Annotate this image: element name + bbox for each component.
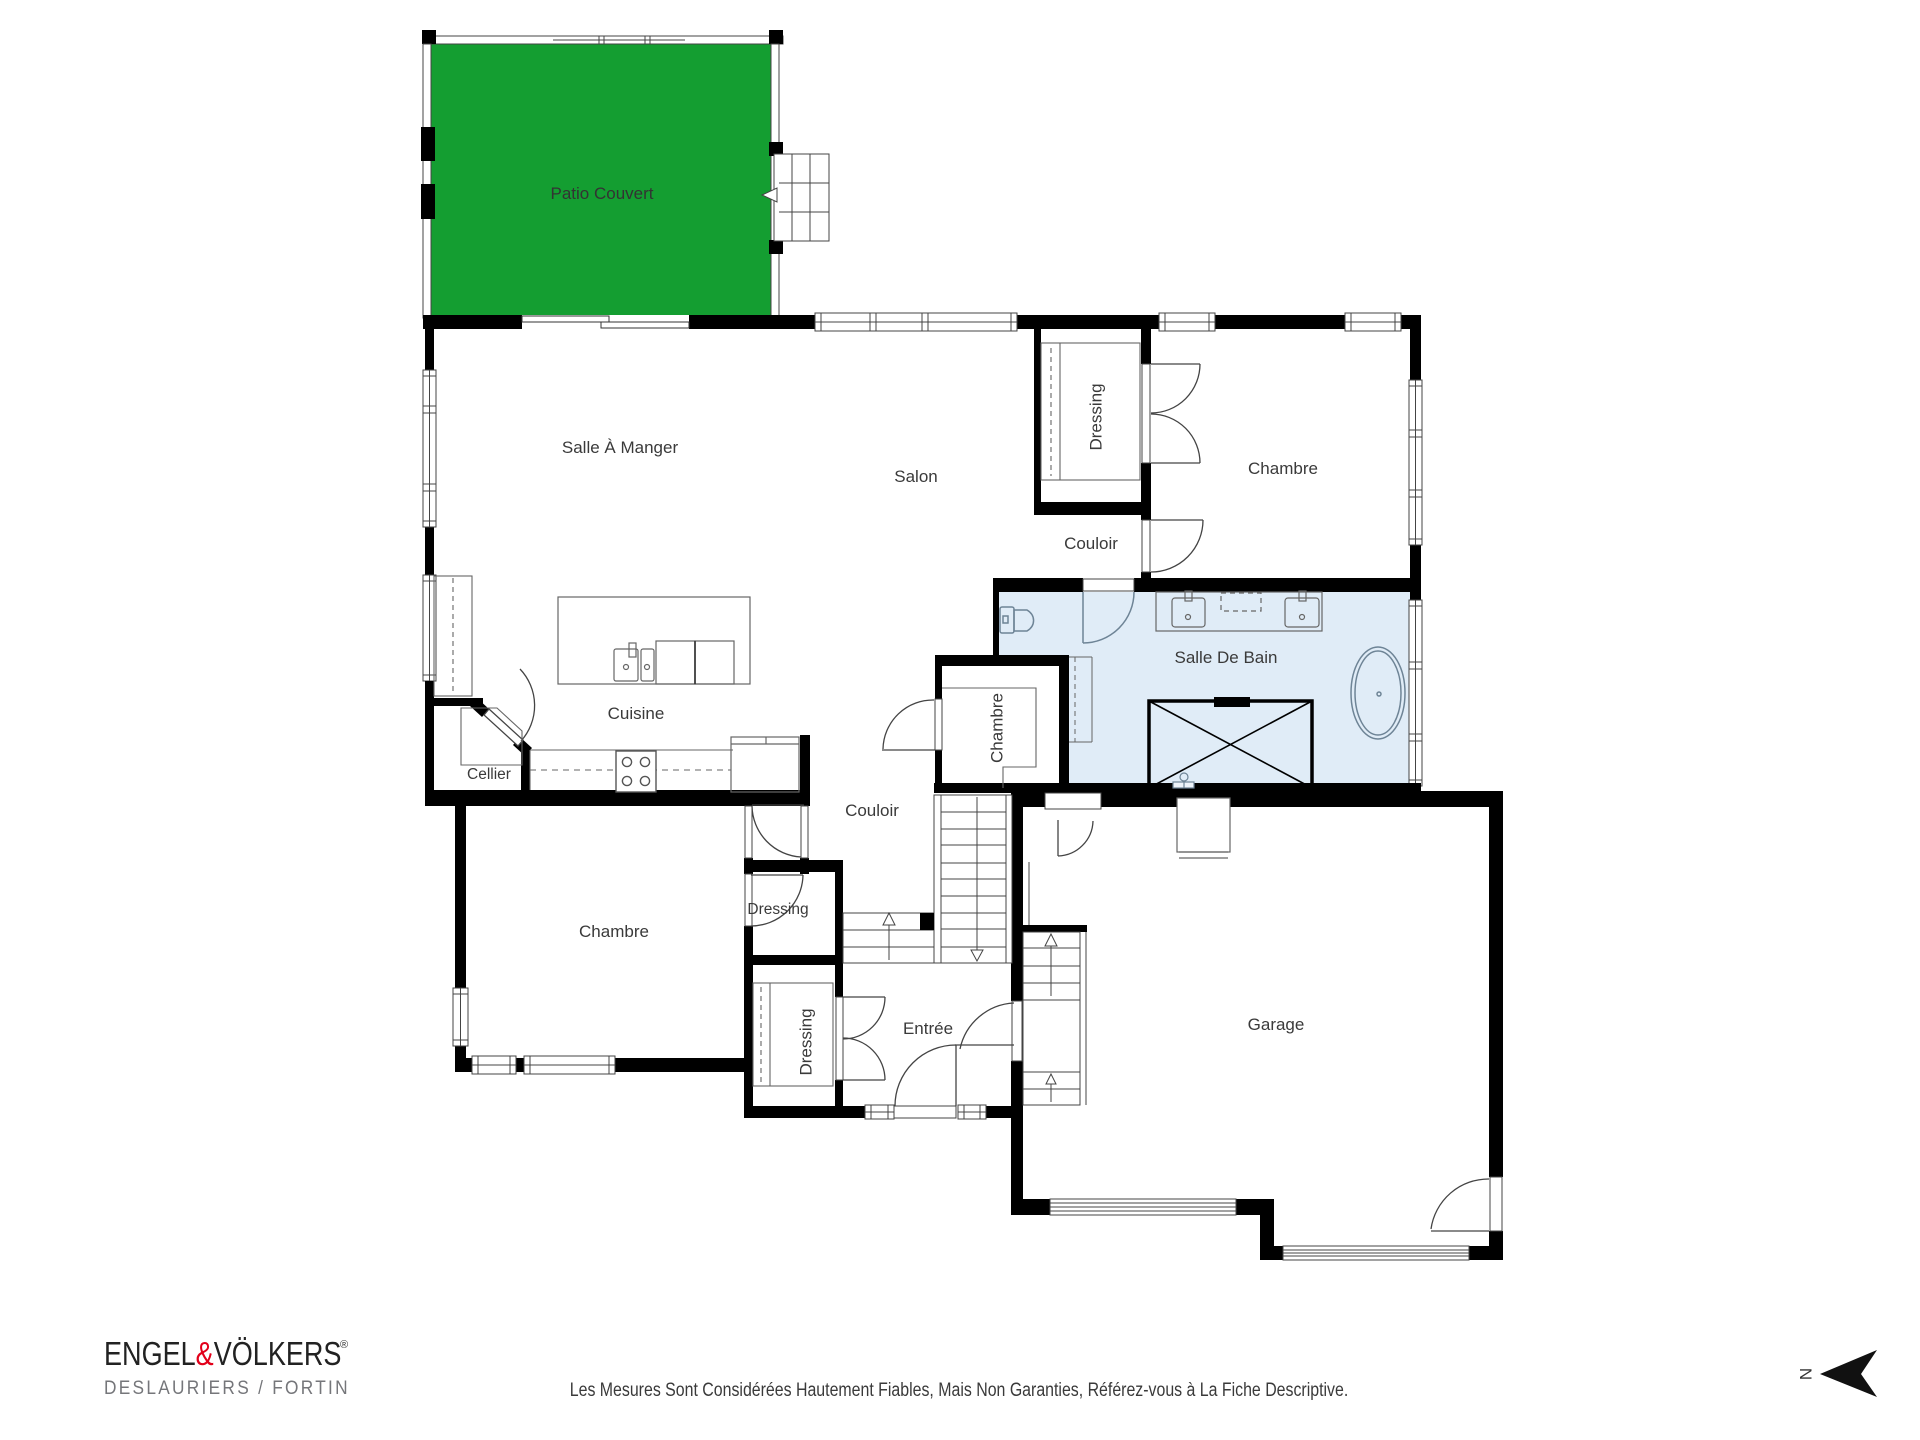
svg-text:DESLAURIERS / FORTIN: DESLAURIERS / FORTIN (104, 1377, 350, 1398)
svg-text:Dressing: Dressing (1087, 383, 1106, 450)
svg-text:Couloir: Couloir (1064, 534, 1118, 553)
svg-text:Garage: Garage (1248, 1015, 1305, 1034)
svg-text:Salon: Salon (894, 467, 937, 486)
svg-text:N: N (1797, 1368, 1816, 1380)
svg-text:Dressing: Dressing (747, 901, 808, 918)
svg-text:Dressing: Dressing (797, 1008, 816, 1075)
svg-text:Les Mesures Sont Considérées H: Les Mesures Sont Considérées Hautement F… (570, 1378, 1348, 1400)
svg-text:ENGEL&VÖLKERS: ENGEL&VÖLKERS (104, 1337, 341, 1373)
svg-text:Couloir: Couloir (845, 801, 899, 820)
svg-text:Entrée: Entrée (903, 1019, 953, 1038)
svg-text:Salle De Bain: Salle De Bain (1174, 648, 1277, 667)
svg-text:Chambre: Chambre (1248, 459, 1318, 478)
svg-text:Salle À Manger: Salle À Manger (562, 438, 679, 457)
svg-text:Cuisine: Cuisine (608, 704, 665, 723)
svg-text:Cellier: Cellier (467, 766, 511, 783)
svg-text:Chambre: Chambre (579, 922, 649, 941)
svg-text:Chambre: Chambre (988, 693, 1007, 763)
svg-text:®: ® (340, 1339, 348, 1351)
svg-text:Patio Couvert: Patio Couvert (551, 184, 654, 203)
